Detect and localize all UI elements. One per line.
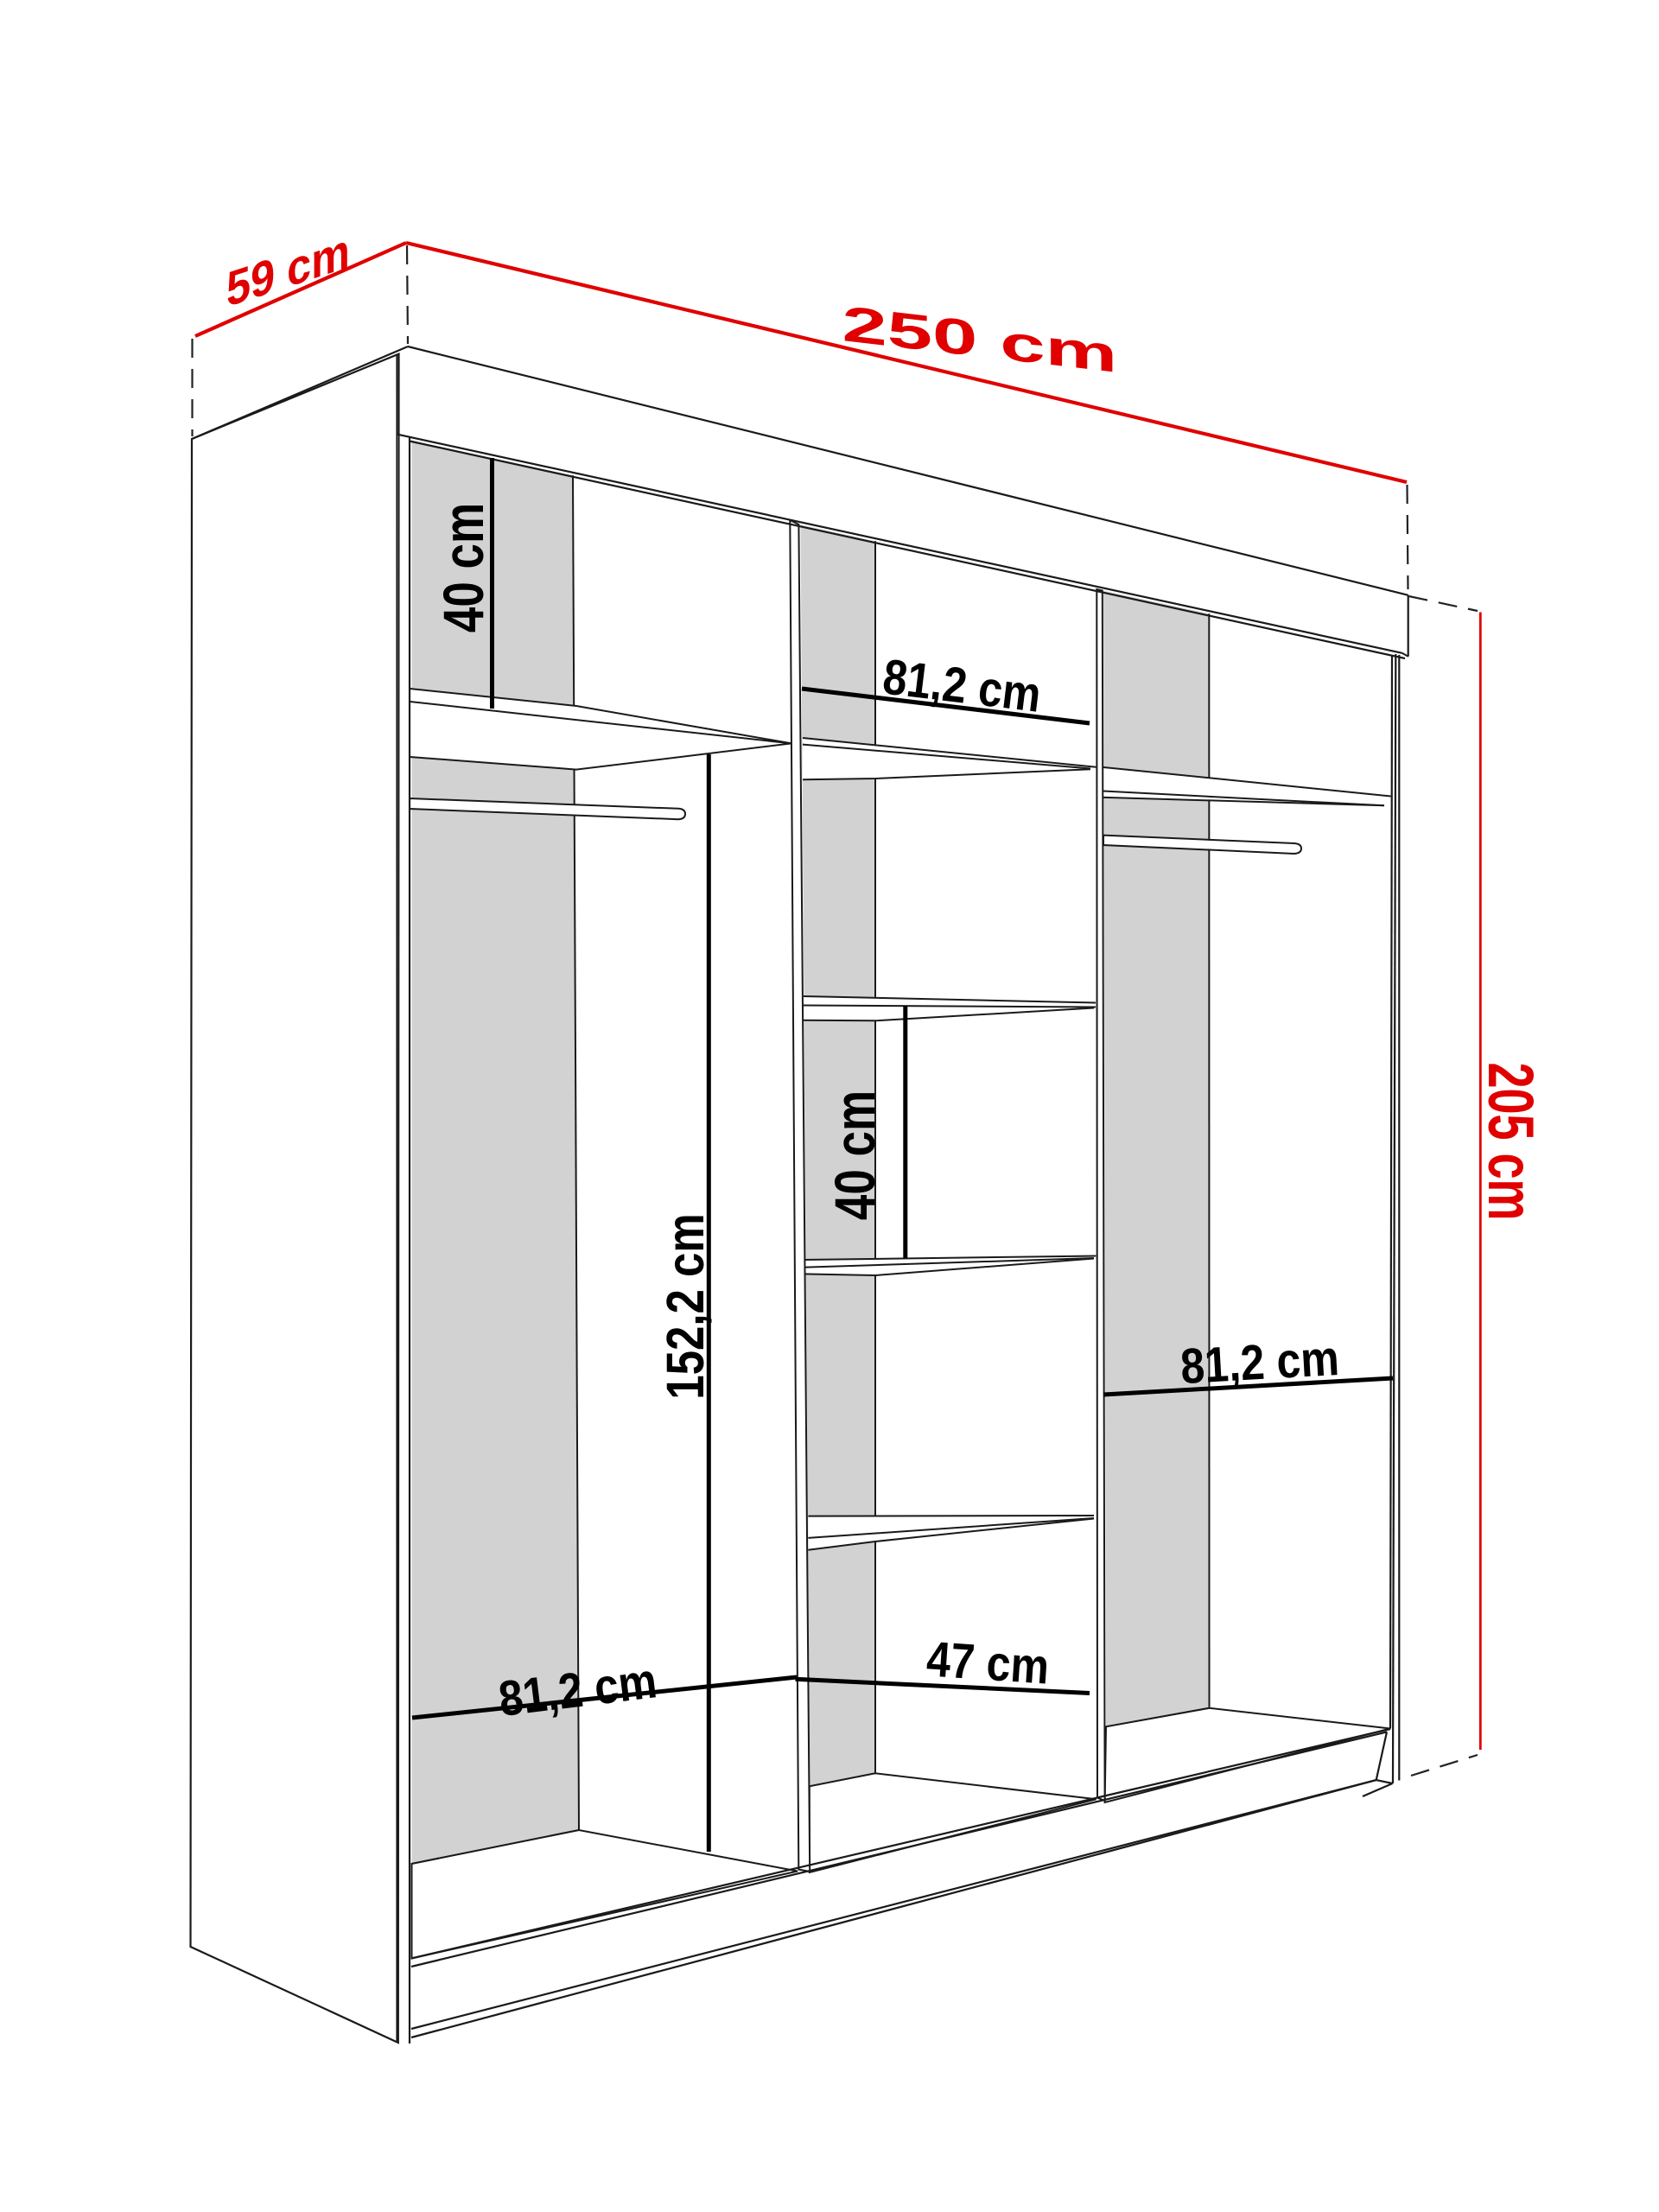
svg-text:205 cm: 205 cm — [1475, 1062, 1547, 1220]
svg-text:40 cm: 40 cm — [823, 1090, 887, 1220]
svg-text:152,2 cm: 152,2 cm — [656, 1213, 715, 1400]
svg-text:40 cm: 40 cm — [431, 503, 495, 632]
svg-text:47 cm: 47 cm — [925, 1631, 1051, 1694]
svg-text:81,2 cm: 81,2 cm — [1179, 1331, 1341, 1395]
